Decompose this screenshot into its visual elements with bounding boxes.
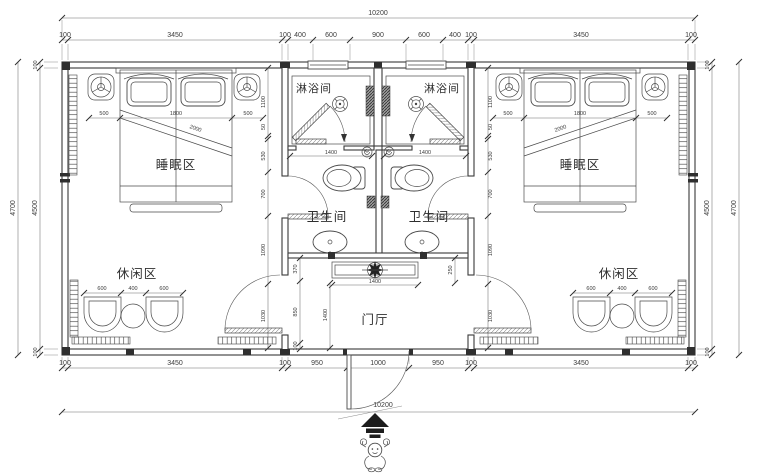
dim-foyer-depth: 1400 xyxy=(323,309,329,321)
dim-right-outer: 4700 xyxy=(731,200,738,216)
radiator xyxy=(626,337,684,344)
shower-sill xyxy=(296,139,326,144)
dim-core: 1100 xyxy=(261,96,267,108)
dim-core: 1090 xyxy=(488,244,494,256)
dim-overall-width-bottom: 10200 xyxy=(373,402,393,409)
dim-top: 400 xyxy=(449,32,461,39)
dim-core: 1090 xyxy=(261,244,267,256)
room-door-right xyxy=(474,275,531,333)
room-label-foyer: 门厅 xyxy=(361,312,388,327)
dim-top: 100 xyxy=(279,32,291,39)
window-above-shower-right xyxy=(406,61,446,69)
dim-bed: 500 xyxy=(647,111,656,117)
dim-lounge: 600 xyxy=(586,286,595,292)
dim-lounge: 400 xyxy=(128,286,137,292)
dimension-core-right-column: 1100 50 530 700 1090 1030 xyxy=(485,65,494,351)
room-label-shower-left: 淋浴间 xyxy=(296,82,332,95)
dim-left-inner: 100 xyxy=(33,60,39,69)
dim-right-inner: 4500 xyxy=(704,200,711,216)
dim-left-inner: 100 xyxy=(33,347,39,356)
window-above-shower-left xyxy=(308,61,348,69)
floor-drain-icon xyxy=(333,97,348,112)
dim-bottom: 1000 xyxy=(370,360,386,367)
ceiling-lamp-icon xyxy=(234,74,260,100)
room-label-lounge-right: 休闲区 xyxy=(599,267,640,281)
shower-door-leaf xyxy=(292,103,329,140)
dim-top: 600 xyxy=(418,32,430,39)
dim-right-inner: 100 xyxy=(705,347,711,356)
dim-bed: 1800 xyxy=(170,111,182,117)
dim-bottom: 3450 xyxy=(167,360,183,367)
radiator xyxy=(72,337,130,344)
radiator xyxy=(70,280,78,337)
dim-foyer-right: 250 xyxy=(448,265,454,274)
dimension-foyer-right: 250 xyxy=(448,255,458,286)
radiator xyxy=(480,337,538,344)
person-figure-icon xyxy=(360,439,389,472)
dim-top: 100 xyxy=(59,32,71,39)
armchair xyxy=(573,297,610,332)
dim-shower-width: 1400 xyxy=(419,150,431,156)
ceiling-lamp-icon xyxy=(496,74,522,100)
dimension-left: 4700 100 4500 100 xyxy=(10,59,58,358)
dim-left-inner: 4500 xyxy=(32,200,39,216)
door-swing-arrow-icon xyxy=(341,134,347,142)
ceiling-lamp-icon xyxy=(88,74,114,100)
room-label-sleep-left: 睡眠区 xyxy=(156,158,197,172)
wc-foyer-wall xyxy=(288,252,468,259)
room-door-left xyxy=(225,275,282,333)
room-label-wc-left: 卫生间 xyxy=(307,210,348,224)
dimension-top-row: 100 3450 100 400 600 900 600 400 100 345… xyxy=(59,32,698,60)
room-label-shower-right: 淋浴间 xyxy=(424,82,460,95)
shower-door-leaf xyxy=(426,103,463,140)
dim-bottom: 100 xyxy=(465,360,477,367)
dim-lounge: 600 xyxy=(648,286,657,292)
dim-core: 530 xyxy=(261,151,267,160)
shower-sill xyxy=(430,139,460,144)
room-label-lounge-left: 休闲区 xyxy=(117,267,158,281)
radiator xyxy=(679,75,687,175)
dimension-lounge-left: 600 400 600 xyxy=(81,286,186,296)
radiator xyxy=(678,280,686,337)
dim-overall-width-top: 10200 xyxy=(368,10,388,17)
entry-arrow-icon xyxy=(361,413,389,427)
dim-core: 1030 xyxy=(261,310,267,322)
dim-bed: 1800 xyxy=(574,111,586,117)
dim-foyer: 850 xyxy=(293,307,299,316)
dim-bottom: 100 xyxy=(279,360,291,367)
dimension-lounge-right: 600 400 600 xyxy=(570,286,675,296)
bed-bench xyxy=(534,204,626,212)
dim-top: 900 xyxy=(372,32,384,39)
dim-top: 3450 xyxy=(167,32,183,39)
dim-bed: 500 xyxy=(503,111,512,117)
dim-top: 400 xyxy=(294,32,306,39)
guest-room-right: 2000 睡眠区 500 1800 500 休闲区 xyxy=(474,68,687,344)
dimension-foyer-depth: 1400 xyxy=(323,280,333,351)
dim-top: 3450 xyxy=(573,32,589,39)
wc-right: 卫生间 xyxy=(384,147,468,258)
dim-top: 100 xyxy=(465,32,477,39)
dim-console-width: 1400 xyxy=(369,279,381,285)
room-label-wc-right: 卫生间 xyxy=(409,210,450,224)
dimension-bottom-overall: 10200 xyxy=(59,402,698,419)
radiator xyxy=(69,75,77,175)
dim-right-inner: 100 xyxy=(705,60,711,69)
ceiling-fan-icon xyxy=(362,261,388,279)
dim-core: 700 xyxy=(261,189,267,198)
dim-core: 530 xyxy=(488,151,494,160)
wc-left: 卫生间 xyxy=(288,147,372,258)
dimension-foyer-left-column: 370 850 100 xyxy=(293,255,303,352)
dim-top: 100 xyxy=(685,32,697,39)
dim-lounge: 600 xyxy=(159,286,168,292)
dim-lounge: 600 xyxy=(97,286,106,292)
dim-core: 1100 xyxy=(488,96,494,108)
floor-plan-drawing: 10200 100 3450 100 400 600 900 600 400 1… xyxy=(0,0,760,473)
round-table xyxy=(610,304,634,328)
dim-bed-length: 2000 xyxy=(189,124,203,134)
round-table xyxy=(121,304,145,328)
dimension-bottom-row: 100 3450 100 950 1000 950 100 3450 100 xyxy=(59,357,698,371)
bed-double: 2000 xyxy=(116,68,236,212)
dim-bottom: 950 xyxy=(311,360,323,367)
dim-bed: 500 xyxy=(99,111,108,117)
ceiling-lamp-icon xyxy=(642,74,668,100)
armchair xyxy=(146,297,183,332)
dimension-right: 100 4500 100 4700 xyxy=(697,59,742,358)
dim-bottom: 100 xyxy=(685,360,697,367)
radiator xyxy=(218,337,276,344)
bed-double: 2000 xyxy=(520,68,640,212)
dim-bed-length: 2000 xyxy=(554,124,568,134)
dim-bottom: 100 xyxy=(59,360,71,367)
dim-foyer: 370 xyxy=(293,264,299,273)
dim-left-outer: 4700 xyxy=(10,200,17,216)
dimension-core-left-column: 1100 50 530 700 1090 1030 xyxy=(261,65,271,351)
dim-shower-width: 1400 xyxy=(325,150,337,156)
dimension-console: 1400 xyxy=(329,279,421,288)
dim-bed: 500 xyxy=(243,111,252,117)
armchair xyxy=(84,297,121,332)
bed-bench xyxy=(130,204,222,212)
dim-core: 1030 xyxy=(488,310,494,322)
shower-room-left: 淋浴间 xyxy=(288,76,374,150)
dim-foyer: 100 xyxy=(293,341,299,350)
floor-drain-icon xyxy=(409,97,424,112)
core-center-wall xyxy=(366,68,390,254)
shower-room-right: 淋浴间 xyxy=(382,76,468,150)
dim-top: 600 xyxy=(325,32,337,39)
door-swing-arrow-icon xyxy=(409,134,415,142)
dim-core: 50 xyxy=(488,124,494,130)
entry-direction-marker xyxy=(360,413,389,472)
dim-bottom: 950 xyxy=(432,360,444,367)
foyer: 门厅 xyxy=(332,261,418,327)
armchair xyxy=(635,297,672,332)
dim-bottom: 3450 xyxy=(573,360,589,367)
room-label-sleep-right: 睡眠区 xyxy=(560,158,601,172)
dim-core: 700 xyxy=(488,189,494,198)
floor-plan-canvas: 10200 100 3450 100 400 600 900 600 400 1… xyxy=(0,0,760,473)
dim-lounge: 400 xyxy=(617,286,626,292)
guest-room-left: 2000 睡眠区 500 1800 500 休闲区 xyxy=(69,68,282,344)
dim-core: 50 xyxy=(261,124,267,130)
